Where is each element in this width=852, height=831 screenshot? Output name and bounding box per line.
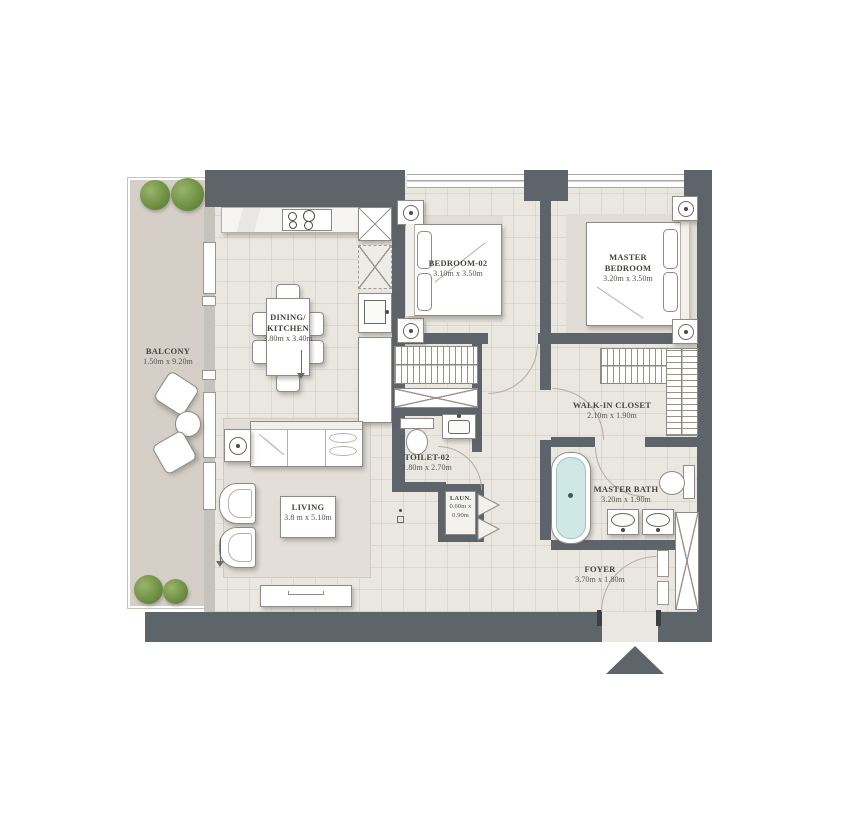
armchair-seat xyxy=(228,489,252,518)
entrance-arrow-icon xyxy=(606,646,664,674)
living-label: LIVING 3.8 m x 5.10m xyxy=(282,502,334,523)
kitchen-sink-basin xyxy=(364,300,386,324)
pillow xyxy=(663,229,678,269)
door-indicator-arrow xyxy=(220,538,221,562)
tv-console-handle xyxy=(288,591,324,595)
shrub-icon xyxy=(134,575,163,604)
sink-tap xyxy=(621,528,625,532)
bathtub-drain xyxy=(568,493,573,498)
shrub-icon xyxy=(163,579,188,604)
wall-bottom-right xyxy=(658,612,712,642)
bedroom02-window xyxy=(407,174,524,188)
stove-burner xyxy=(288,212,297,221)
sliding-door-panel xyxy=(203,462,216,510)
toilet02-label: TOILET-02 1.80m x 2.70m xyxy=(388,452,466,473)
bifold-door-icon xyxy=(477,493,503,541)
lamp-icon xyxy=(229,437,247,455)
pillow xyxy=(663,272,678,312)
tv-console xyxy=(260,585,352,607)
armchair-seat xyxy=(228,533,252,562)
sliding-door-panel xyxy=(203,242,216,294)
lamp-icon xyxy=(403,205,419,221)
sink-basin xyxy=(611,513,635,527)
sofa-seam xyxy=(325,430,326,466)
bedroom02-label: BEDROOM-02 3.10m x 3.50m xyxy=(418,258,498,279)
sliding-door-knob xyxy=(202,370,216,380)
walkin-closet-rail xyxy=(666,348,698,436)
sofa-cushion xyxy=(329,433,357,443)
lamp-icon xyxy=(403,323,419,339)
wall-top-kitchen xyxy=(205,170,405,207)
master-bedroom-label: MASTER BEDROOM 3.20m x 3.50m xyxy=(593,252,663,284)
master-bath-label: MASTER BATH 3.20m x 1.90m xyxy=(584,484,668,505)
entrance-jamb-left xyxy=(597,610,602,626)
toilet-tank xyxy=(400,418,434,429)
service-shaft xyxy=(675,512,699,610)
wall-bottom-main xyxy=(145,612,602,642)
arrow-tip-icon xyxy=(297,373,305,379)
entrance-jamb-right xyxy=(656,610,661,626)
wall-bath-left xyxy=(540,440,551,540)
floor-drain xyxy=(397,516,404,523)
laundry-label: LAUN. 0.60m x 0.90m xyxy=(444,495,477,520)
master-bedroom-window xyxy=(568,174,684,188)
sliding-door-knob xyxy=(202,296,216,306)
kitchen-appliance xyxy=(358,245,392,289)
sink-tap xyxy=(457,414,461,418)
sink-basin xyxy=(448,420,470,434)
wall-bath-top-right xyxy=(645,437,697,447)
arrow-tip-icon xyxy=(216,561,224,567)
dining-kitchen-label: DINING/ KITCHEN 3.80m x 3.40m xyxy=(261,312,315,344)
balcony-label: BALCONY 1.50m x 9.20m xyxy=(122,346,214,367)
bathtub-water xyxy=(556,457,586,539)
bed-headboard xyxy=(406,224,415,316)
door-jamb-panel xyxy=(657,581,669,605)
wall-between-bedrooms xyxy=(540,192,551,344)
entrance-opening xyxy=(602,612,658,642)
linen-cabinet xyxy=(394,388,478,408)
sofa-seam xyxy=(287,430,288,466)
kitchen-lower-counter xyxy=(358,337,392,423)
bedroom02-wardrobe xyxy=(394,346,478,384)
floor-plan: DINING/ KITCHEN 3.80m x 3.40m BEDROOM-02… xyxy=(0,0,852,831)
sliding-door-panel xyxy=(203,392,216,458)
sofa-back xyxy=(251,422,362,430)
drain-dot xyxy=(399,509,402,512)
door-indicator-arrow xyxy=(301,350,302,374)
stove-burner xyxy=(289,221,297,229)
kitchen-sink-tap xyxy=(385,310,389,314)
wall-right xyxy=(697,170,712,642)
lamp-icon xyxy=(678,201,694,217)
door-jamb-panel xyxy=(657,550,669,577)
foyer-label: FOYER 3.70m x 1.80m xyxy=(556,564,644,585)
sofa-cushion xyxy=(329,446,357,456)
walk-in-closet-label: WALK-IN CLOSET 2.10m x 1.90m xyxy=(560,400,664,421)
stove-burner xyxy=(304,221,313,230)
sink-basin xyxy=(646,513,670,527)
lamp-icon xyxy=(678,324,694,340)
sink-tap xyxy=(656,528,660,532)
kitchen-window-unit xyxy=(358,207,392,241)
bed-headboard xyxy=(680,222,689,326)
tree-icon xyxy=(171,178,204,211)
wall-wic-left xyxy=(540,344,551,390)
tree-icon xyxy=(140,180,170,210)
